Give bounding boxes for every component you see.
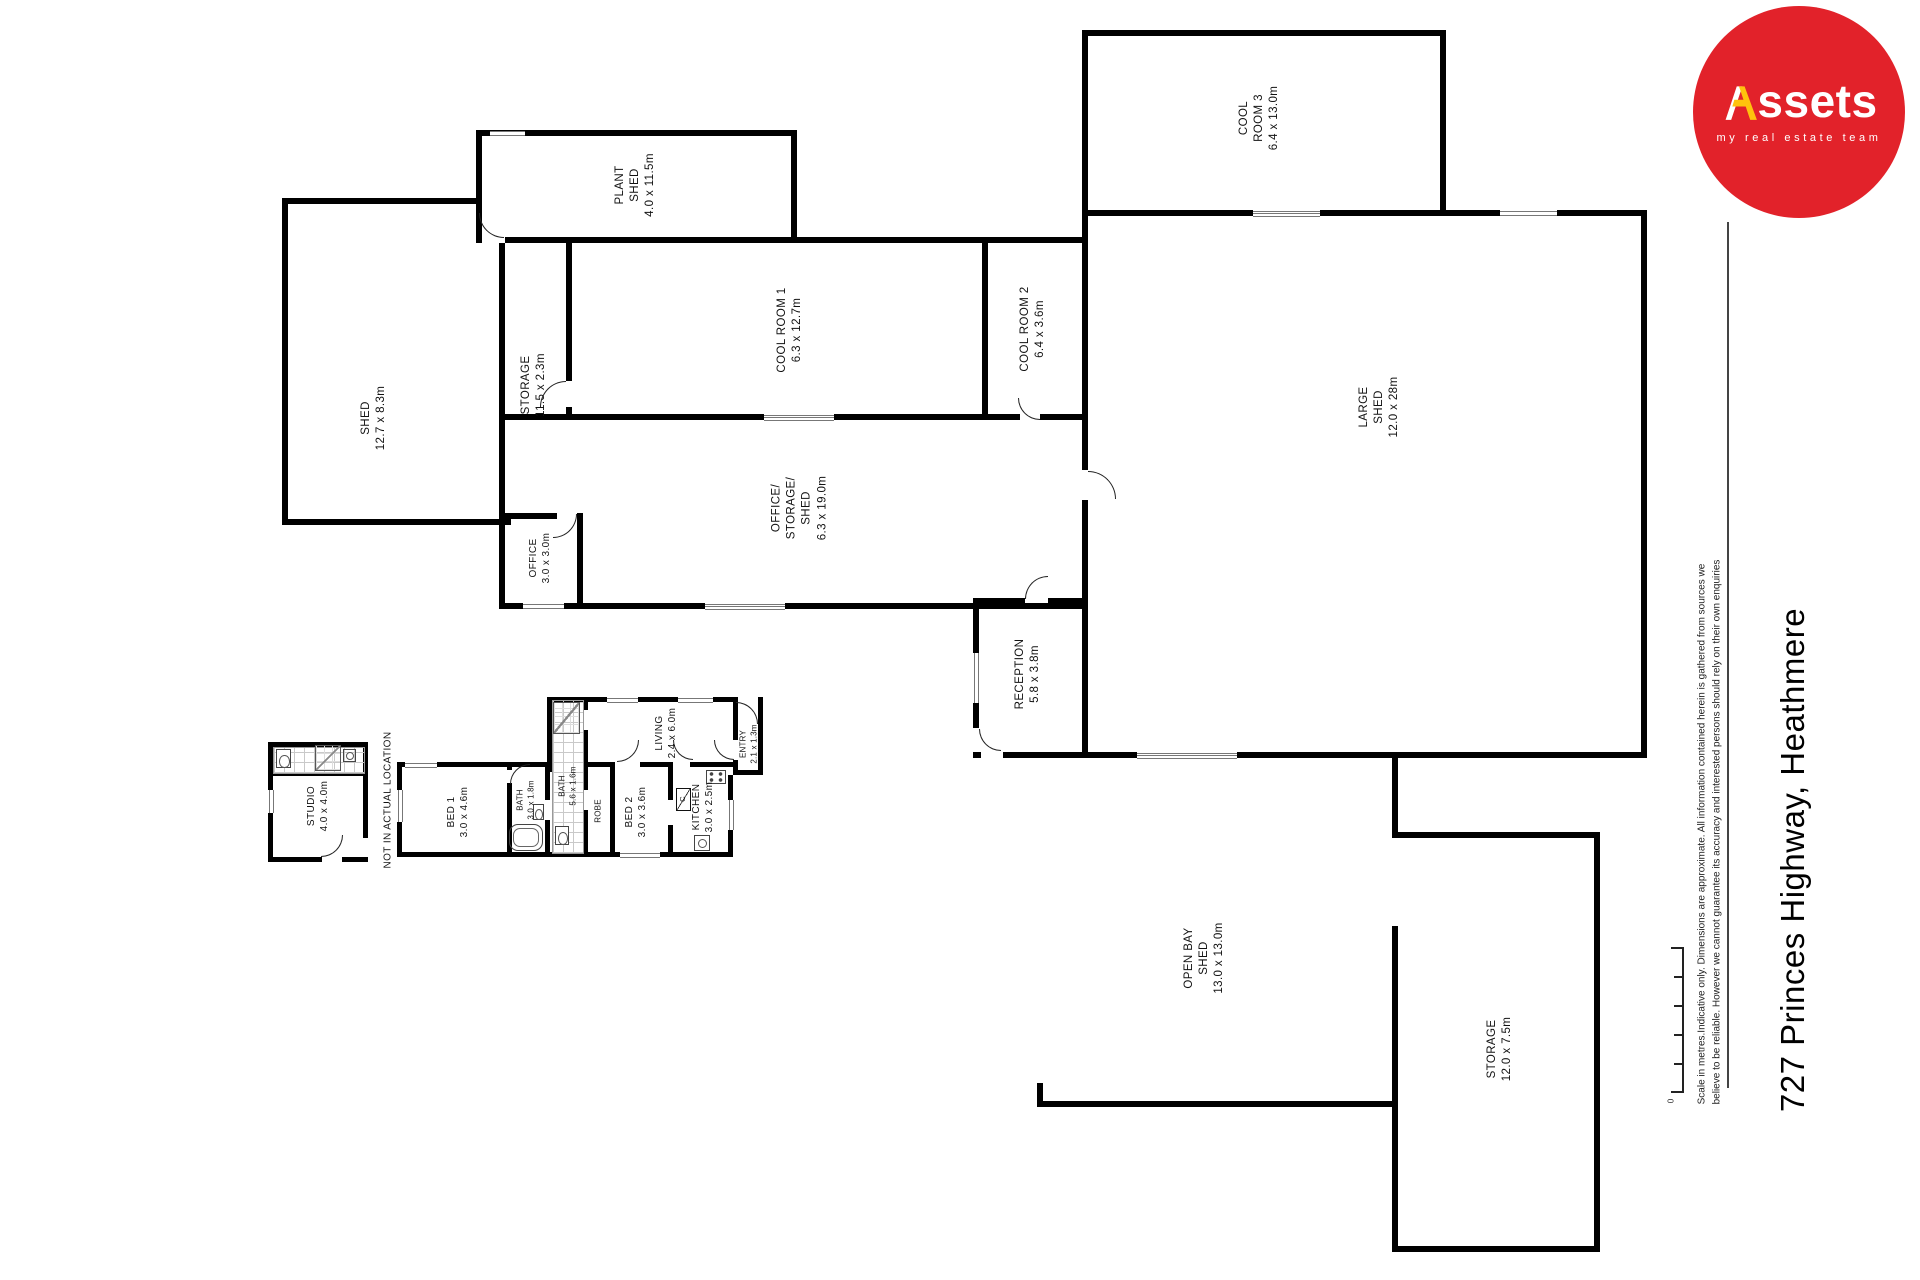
wall (1040, 414, 1082, 420)
wall (1392, 832, 1600, 838)
wall (437, 762, 550, 767)
logo-a-icon (1720, 81, 1758, 123)
scale-bar-tick (1674, 1063, 1683, 1065)
window (607, 698, 638, 703)
room-label-shed: SHED12.7 x 8.3m (359, 386, 389, 451)
room-label-cool-room-1: COOL ROOM 16.3 x 12.7m (775, 287, 805, 372)
room-label-bath1: BATH3.0 x 1.8m (515, 780, 536, 819)
wall (733, 760, 738, 775)
room-label-office: OFFICE3.0 x 3.0m (527, 533, 553, 584)
scale-bar-line (1682, 947, 1684, 1093)
room-label-cool-room-2: COOL ROOM 26.4 x 3.6m (1018, 286, 1048, 371)
sink-icon (343, 749, 356, 762)
door-arc (1018, 398, 1040, 420)
wall (499, 243, 505, 609)
window (729, 800, 734, 830)
door-arc (1025, 576, 1048, 599)
wall (1082, 30, 1088, 470)
assets-logo: ssets my real estate team (1693, 6, 1905, 218)
window (620, 853, 660, 858)
wall (1003, 752, 1137, 758)
wall (282, 519, 511, 525)
window (405, 763, 437, 768)
wall (728, 775, 733, 800)
door-arc (479, 213, 504, 238)
wall (785, 603, 1082, 609)
wall (1446, 210, 1500, 216)
door-arc (1088, 471, 1116, 499)
separator-rule (1727, 222, 1729, 1088)
floor-plan: PLANTSHED4.0 x 11.5m SHED12.7 x 8.3m STO… (0, 0, 1920, 1280)
wall (638, 697, 678, 702)
wall (1082, 30, 1446, 36)
window (1500, 211, 1557, 216)
wall (1440, 30, 1446, 216)
scale-bar-tick (1671, 947, 1683, 949)
wall (834, 414, 1020, 420)
window (523, 604, 564, 609)
wall (1037, 1083, 1043, 1107)
note-not-in-actual-location: NOT IN ACTUAL LOCATION (381, 732, 394, 869)
room-label-reception: RECEPTION5.8 x 3.8m (1013, 639, 1043, 710)
sliding-door (1253, 211, 1320, 217)
wall (973, 752, 981, 758)
scale-bar-zero: 0 (1665, 1099, 1675, 1104)
wall (1048, 598, 1082, 604)
wall (1082, 500, 1088, 758)
scale-bar-tick (1674, 976, 1683, 978)
room-label-storage-yard: STORAGE12.0 x 7.5m (1485, 1017, 1515, 1082)
wall (268, 857, 322, 862)
wall (973, 598, 1025, 604)
wall (564, 603, 705, 609)
wall (1594, 832, 1600, 1252)
room-label-studio: STUDIO4.0 x 4.0m (305, 781, 331, 832)
wall (545, 820, 550, 857)
logo-tagline: my real estate team (1717, 132, 1882, 144)
wall (1557, 210, 1647, 216)
door-arc (321, 835, 343, 857)
wall (797, 237, 1082, 243)
window (974, 653, 979, 703)
scale-bar-tick (1674, 1034, 1683, 1036)
toilet-icon (555, 826, 569, 845)
bathtub-icon (509, 824, 543, 851)
wall (566, 243, 572, 381)
wall (1641, 210, 1647, 758)
scale-bar-tick (1674, 1005, 1683, 1007)
wall (282, 198, 476, 204)
room-label-closet: C (678, 796, 688, 802)
window (269, 790, 274, 813)
wall (1392, 758, 1398, 838)
wall (342, 857, 368, 862)
room-label-open-bay-shed: OPEN BAYSHED13.0 x 13.0m (1182, 922, 1228, 993)
window (398, 790, 403, 822)
wall (499, 513, 557, 519)
wall (505, 237, 797, 243)
room-label-cool-room-3: COOLROOM 36.4 x 13.0m (1237, 86, 1283, 151)
room-label-bed1: BED 13.0 x 4.6m (445, 787, 471, 838)
room-label-robe: ROBE (594, 799, 605, 822)
wall (1320, 210, 1446, 216)
wall (973, 703, 979, 728)
wall (268, 813, 273, 862)
door-arc (714, 740, 734, 760)
wall (499, 603, 523, 609)
wall (1392, 926, 1398, 1246)
room-label-plant-shed: PLANTSHED4.0 x 11.5m (613, 153, 659, 217)
wall (397, 762, 402, 790)
sliding-door (764, 415, 834, 421)
window (490, 131, 525, 136)
room-label-large-shed: LARGESHED12.0 x 28m (1357, 377, 1403, 438)
wall (476, 130, 482, 243)
wall (282, 198, 288, 525)
wall (1392, 1246, 1600, 1252)
wall (668, 825, 673, 857)
wall (973, 604, 979, 653)
wall (1237, 752, 1647, 758)
wall (690, 762, 733, 767)
scale-bar-tick (1671, 1091, 1683, 1093)
room-label-bed2: BED 23.0 x 3.6m (623, 787, 649, 838)
wall (1082, 210, 1253, 216)
sliding-door (705, 604, 785, 610)
wall (791, 130, 797, 243)
wall (545, 762, 550, 800)
wall (507, 762, 512, 770)
shower-icon (553, 702, 580, 734)
property-address: 727 Princes Highway, Heathmere (1774, 608, 1812, 1112)
room-label-bath2: BATH5.6 x 1.6m (557, 766, 578, 805)
disclaimer-text: Scale in metres.Indicative only. Dimensi… (1696, 560, 1725, 1105)
room-label-entry: ENTRY2.1 x 1.3m (738, 724, 759, 763)
shower-icon (315, 745, 341, 771)
wall (577, 513, 583, 603)
door-arc (979, 729, 1001, 751)
logo-text: ssets (1757, 81, 1877, 122)
wall (728, 830, 733, 857)
sliding-door (1137, 753, 1237, 759)
room-label-storage-corridor: STORAGE11.5 x 2.3m (519, 353, 549, 417)
toilet-icon (276, 749, 291, 768)
window (678, 698, 713, 703)
room-label-kitchen: KITCHEN3.0 x 2.5m (690, 782, 716, 833)
door-arc (736, 702, 758, 724)
wall (610, 767, 615, 852)
room-label-office-storage-shed: OFFICE/STORAGE/SHED6.3 x 19.0m (770, 476, 831, 541)
door-arc (617, 740, 639, 762)
wall (1037, 1101, 1398, 1107)
room-label-living: LIVING2.4 x 6.0m (653, 708, 679, 759)
assets-logo-wordmark: ssets (1720, 81, 1877, 123)
sink-icon (694, 835, 710, 851)
wall (982, 243, 988, 420)
door-arc (553, 514, 577, 538)
wall (668, 762, 673, 800)
